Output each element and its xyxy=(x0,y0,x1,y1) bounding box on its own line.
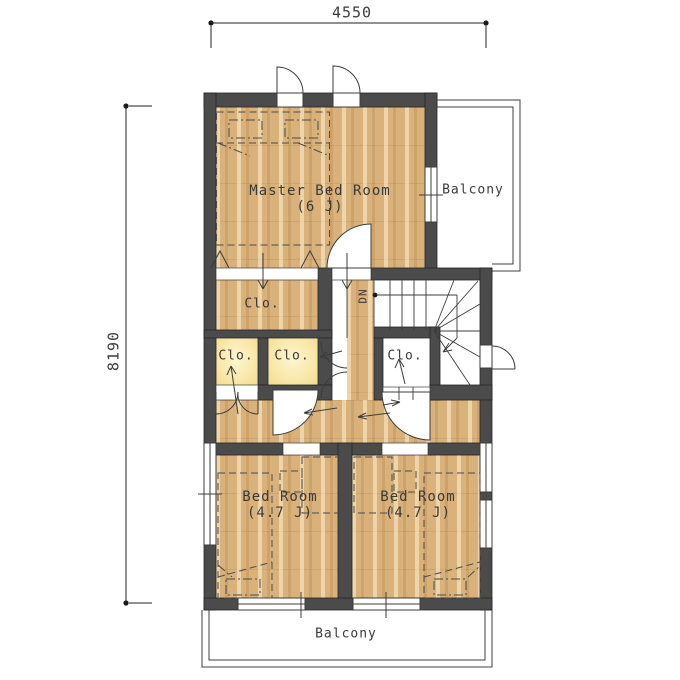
stair-direction-line xyxy=(373,293,457,352)
casement-window-top-1 xyxy=(277,67,303,107)
closet-wide-label: Clo. xyxy=(244,298,279,311)
bottom-sliding-window-2 xyxy=(353,592,420,618)
master-door-swing xyxy=(327,224,371,268)
bedroom-left-label: Bed Room xyxy=(242,490,317,504)
floor-plan-canvas: 4550 8190 Master Bed Room (6 J) Balcony … xyxy=(0,0,680,680)
folding-door-symbols xyxy=(211,251,319,268)
windows xyxy=(198,66,515,618)
casement-window-top-2 xyxy=(333,66,360,107)
bedroom-right-label: Bed Room xyxy=(380,490,455,504)
dimension-top-value: 4550 xyxy=(332,6,372,21)
bedroom-left-door-swing xyxy=(273,390,318,435)
closet-mid-label: Clo. xyxy=(274,350,309,363)
balcony-sliding-window xyxy=(419,167,443,222)
bedroom-right-door-swing xyxy=(382,392,430,440)
bedroom-right-size: (4.7 J) xyxy=(385,506,451,520)
master-bed xyxy=(216,112,330,245)
stairs-dn-label: DN xyxy=(358,288,369,303)
closet-right-label: Clo. xyxy=(387,350,422,363)
master-bedroom-size: (6 J) xyxy=(296,200,343,214)
bedroom-right-window-1 xyxy=(480,443,492,492)
stair-casement-window xyxy=(480,345,515,369)
plan-linework xyxy=(0,0,680,680)
dimension-top xyxy=(208,20,488,48)
dimension-left-value: 8190 xyxy=(107,331,122,371)
dimension-left xyxy=(123,103,152,605)
master-bedroom-label: Master Bed Room xyxy=(249,184,390,198)
closet-left-label: Clo. xyxy=(218,350,253,363)
balcony-bottom-label: Balcony xyxy=(315,628,377,641)
bedroom-left-size: (4.7 J) xyxy=(247,506,313,520)
bedroom-right-window-2 xyxy=(480,500,492,548)
balcony-top-label: Balcony xyxy=(442,184,504,197)
